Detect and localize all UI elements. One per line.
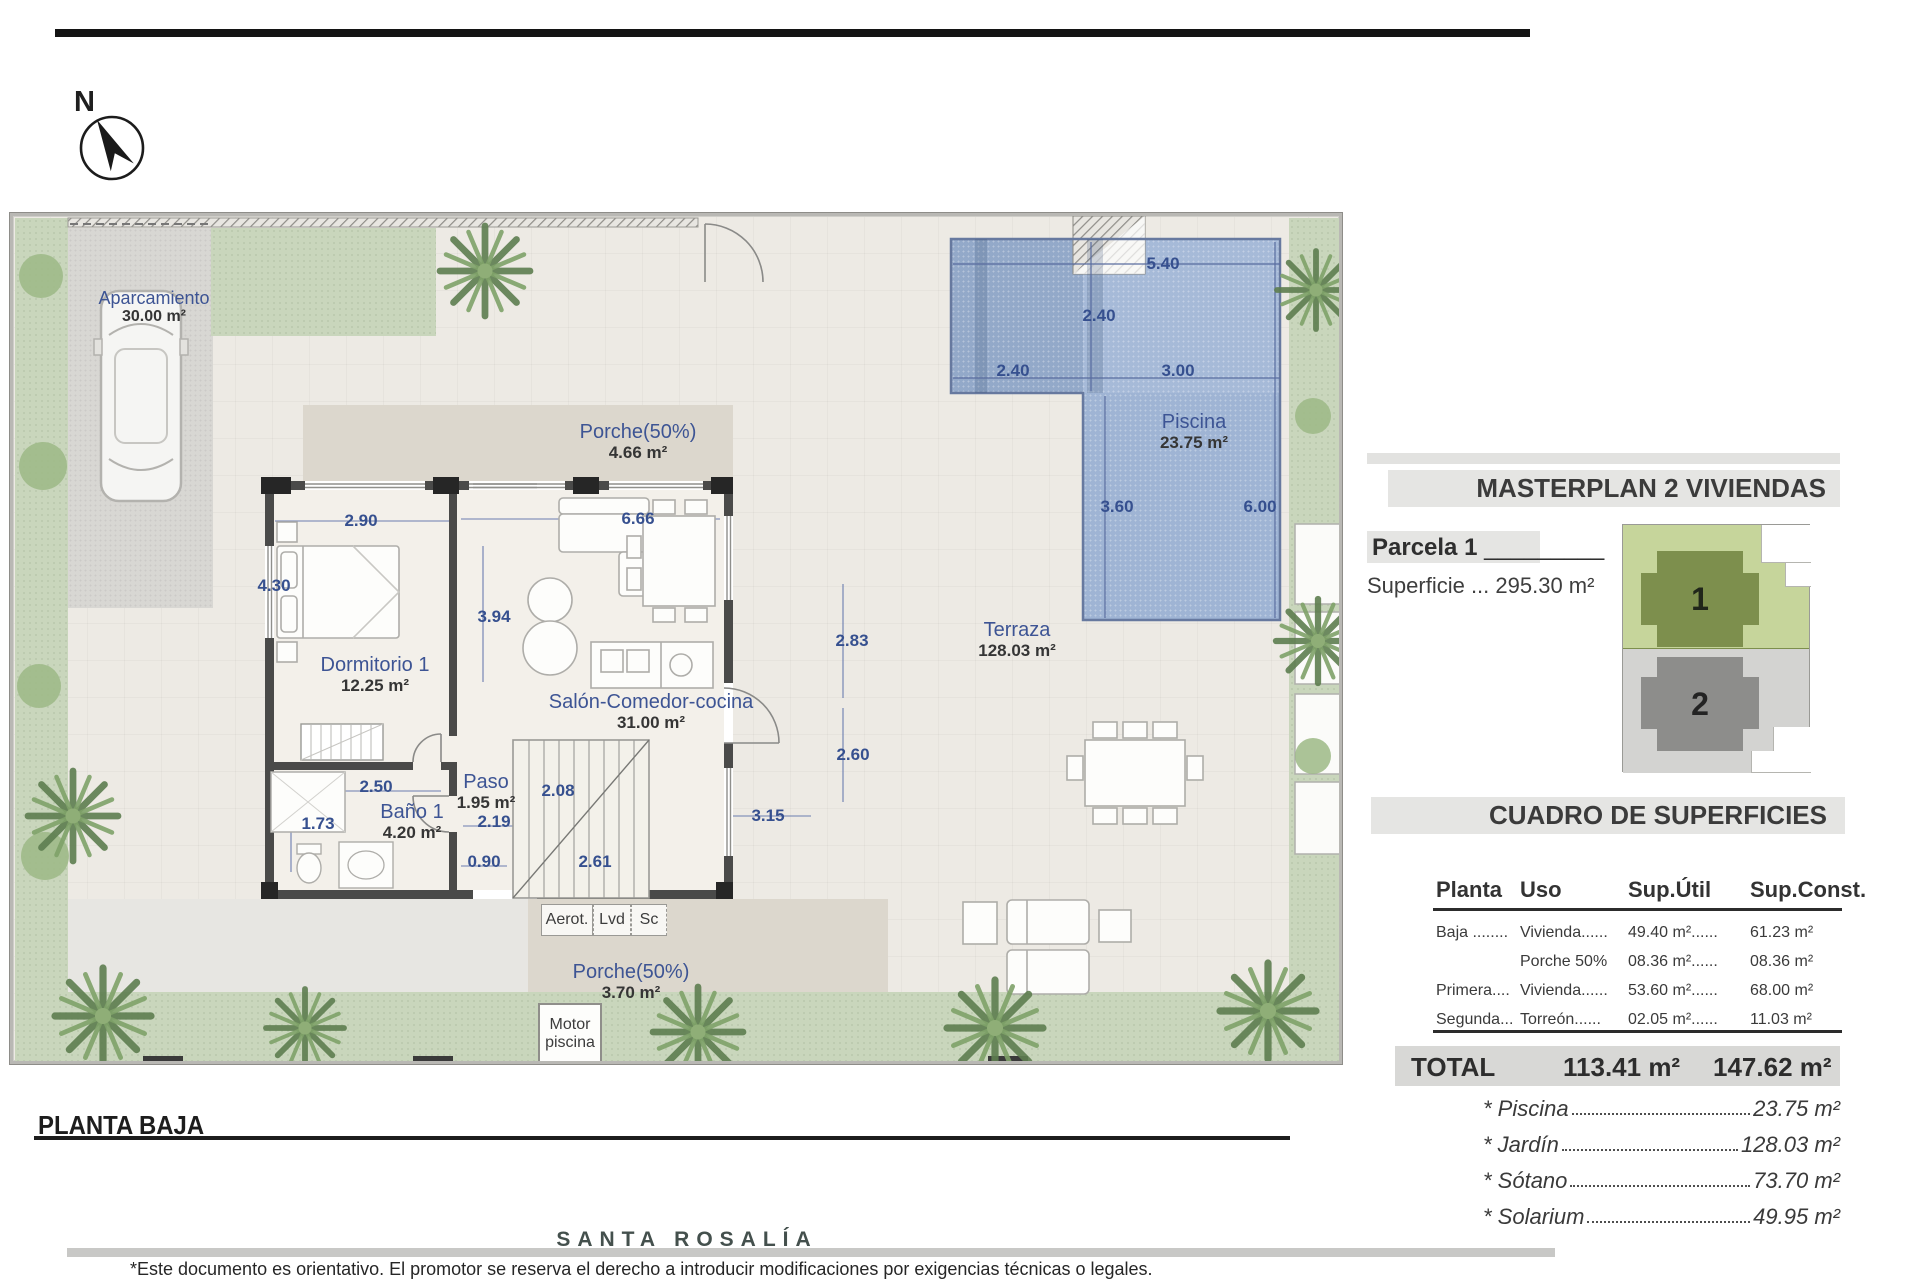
dim-label: 4.30 (257, 576, 290, 596)
dim-label: 2.61 (578, 852, 611, 872)
dim-label: 6.66 (621, 509, 654, 529)
table-rule (1433, 908, 1842, 911)
coffee-tables (523, 578, 577, 675)
label-porche-bottom: Porche(50%) 3.70 m² (573, 961, 690, 1002)
label-paso: Paso 1.95 m² (457, 771, 516, 812)
masterplan-minimap: 1 2 (1622, 524, 1810, 772)
outdoor-dining (1067, 722, 1203, 824)
dim-label: 0.90 (467, 852, 500, 872)
list-item: * Solarium49.95 m² (1483, 1194, 1840, 1230)
wardrobe (301, 724, 383, 760)
kitchen-island (591, 642, 713, 688)
footer-bar (67, 1248, 1555, 1257)
bed (277, 522, 399, 662)
floor-plan: Aparcamiento 30.00 m² Porche(50%) 4.66 m… (10, 213, 1342, 1064)
dim-label: 2.08 (541, 781, 574, 801)
dim-label: 2.60 (836, 745, 869, 765)
dim-label: 2.40 (1082, 306, 1115, 326)
minimap-notch (1751, 751, 1775, 773)
sc-box: Sc (631, 904, 667, 936)
compass-icon (76, 112, 148, 184)
superficies-table-body: Baja ........ Vivienda...... 49.40 m²...… (1436, 918, 1840, 1034)
dim-label: 6.00 (1243, 497, 1276, 517)
title-rule (34, 1136, 1290, 1140)
cuadro-title: CUADRO DE SUPERFICIES (1371, 797, 1845, 834)
plan-drawing (13, 216, 1342, 1064)
dim-label: 3.94 (477, 607, 510, 627)
table-row: Porche 50% 08.36 m²...... 08.36 m² (1436, 947, 1840, 976)
table-header-row: Planta Uso Sup.Útil Sup.Const. (1436, 874, 1840, 906)
top-rule (55, 29, 1530, 37)
lvd-box: Lvd (593, 904, 631, 936)
label-porche-top: Porche(50%) 4.66 m² (580, 421, 697, 462)
dim-label: 3.60 (1100, 497, 1133, 517)
dim-label: 3.15 (751, 806, 784, 826)
disclaimer-text: *Este documento es orientativo. El promo… (130, 1259, 1153, 1280)
dim-label: 2.40 (996, 361, 1029, 381)
superficie-label: Superficie ... 295.30 m² (1367, 573, 1594, 599)
minimap-notch (1761, 525, 1811, 563)
dim-label: 3.00 (1161, 361, 1194, 381)
dim-label: 2.90 (344, 511, 377, 531)
label-piscina: Piscina 23.75 m² (1160, 411, 1228, 452)
planter-boxes (1295, 524, 1341, 854)
label-terraza: Terraza 128.03 m² (978, 619, 1056, 660)
dim-label: 2.83 (835, 631, 868, 651)
list-item: * Jardín128.03 m² (1483, 1122, 1840, 1158)
minimap-unit-1: 1 (1657, 551, 1743, 647)
masterplan-thin-bar (1367, 453, 1840, 464)
table-rule (1433, 1030, 1842, 1033)
aerot-box: Aerot. (541, 904, 593, 936)
total-row: TOTAL 113.41 m² 147.62 m² (1395, 1046, 1840, 1086)
list-item: * Piscina23.75 m² (1483, 1086, 1840, 1122)
dim-label: 1.73 (301, 814, 334, 834)
table-row: Primera.... Vivienda...... 53.60 m².....… (1436, 976, 1840, 1005)
masterplan-title: MASTERPLAN 2 VIVIENDAS (1388, 470, 1840, 507)
list-item: * Sótano73.70 m² (1483, 1158, 1840, 1194)
sun-loungers (963, 900, 1131, 994)
dim-label: 2.19 (477, 812, 510, 832)
pool-dim-lines (953, 242, 1280, 618)
minimap-notch (1785, 563, 1811, 587)
motor-piscina-box: Motor piscina (538, 1003, 602, 1064)
label-aparcamiento: Aparcamiento 30.00 m² (98, 288, 209, 326)
superficies-table-header: Planta Uso Sup.Útil Sup.Const. (1436, 874, 1840, 906)
label-salon: Salón-Comedor-cocina 31.00 m² (549, 691, 754, 732)
extras-list: * Piscina23.75 m² * Jardín128.03 m² * Só… (1483, 1086, 1840, 1230)
label-bano: Baño 1 4.20 m² (380, 801, 443, 842)
minimap-unit-2: 2 (1657, 657, 1743, 751)
pool-outline (951, 239, 1280, 620)
dim-label: 5.40 (1146, 254, 1179, 274)
table-row: Baja ........ Vivienda...... 49.40 m²...… (1436, 918, 1840, 947)
dim-label: 2.50 (359, 777, 392, 797)
parcela-label: Parcela 1 _________ (1372, 534, 1604, 562)
label-dormitorio: Dormitorio 1 12.25 m² (321, 654, 430, 695)
staircase (513, 740, 649, 898)
minimap-notch (1773, 727, 1811, 773)
